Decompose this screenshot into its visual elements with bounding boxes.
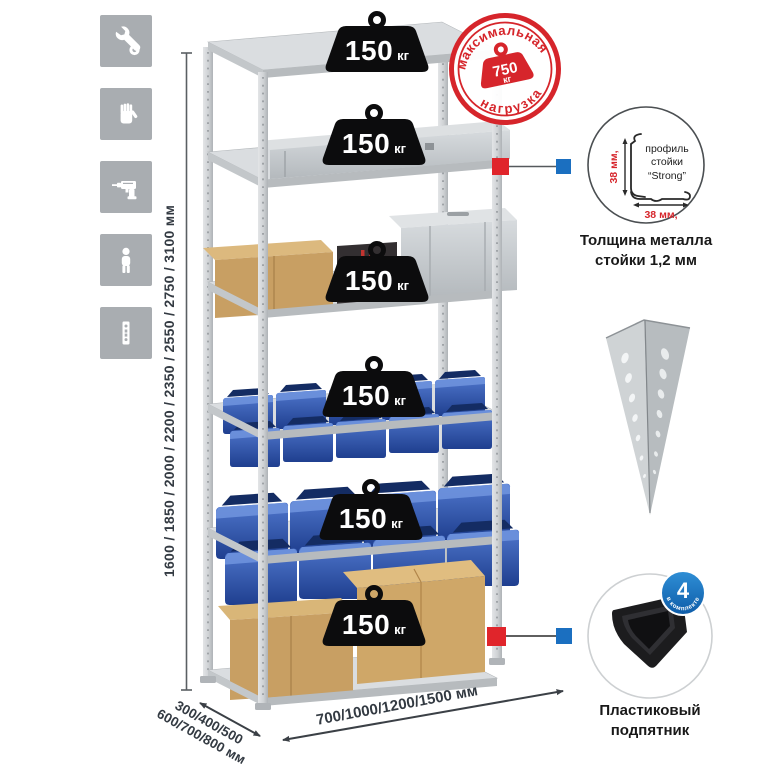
foot-caption-line2: подпятник bbox=[572, 721, 728, 741]
weight-value: 150 bbox=[339, 503, 387, 535]
height-dimension-label: 1600 / 1850 / 2000 / 2200 / 2350 / 2550 … bbox=[161, 111, 181, 671]
profile-label-line2: стойки bbox=[651, 156, 683, 168]
shelf-weight-4: 150кг bbox=[313, 355, 435, 421]
bottom-callout-blue-square bbox=[556, 628, 572, 644]
weight-value: 150 bbox=[345, 35, 393, 67]
shelving-infographic: 150кг 150кг 150кг 150кг 150кг bbox=[0, 0, 765, 765]
bottom-callout-red-square bbox=[487, 627, 506, 646]
profile-label-line1: профиль bbox=[645, 143, 689, 155]
foot-caption-line1: Пластиковый bbox=[572, 701, 728, 721]
profile-cross-section-callout: 38 мм, 38 мм, профиль стойки “Strong” bbox=[585, 104, 707, 226]
included-count-badge: 4 в комплекте bbox=[659, 569, 707, 617]
top-callout-blue-square bbox=[556, 159, 571, 174]
profile-caption: Толщина металла стойки 1,2 мм bbox=[565, 231, 727, 270]
top-callout-red-square bbox=[492, 158, 509, 175]
profile-vertical-dim: 38 мм, bbox=[608, 150, 620, 183]
weight-value: 150 bbox=[342, 380, 390, 412]
weight-unit: кг bbox=[397, 48, 409, 63]
max-load-stamp: максимальная нагрузка 750 кг bbox=[436, 0, 574, 138]
badge-value: 4 bbox=[677, 578, 690, 603]
shelf-weight-3: 150кг bbox=[316, 240, 438, 306]
profile-horizontal-dim: 38 мм, bbox=[644, 209, 677, 221]
weight-unit: кг bbox=[394, 141, 406, 156]
weight-unit: кг bbox=[397, 278, 409, 293]
weight-unit: кг bbox=[394, 622, 406, 637]
shelf-weight-1: 150кг bbox=[316, 10, 438, 76]
weight-value: 150 bbox=[342, 128, 390, 160]
weight-value: 150 bbox=[345, 265, 393, 297]
profile-label-line3: “Strong” bbox=[648, 170, 686, 182]
shelf-weight-5: 150кг bbox=[310, 478, 432, 544]
weight-unit: кг bbox=[391, 516, 403, 531]
weight-value: 150 bbox=[342, 609, 390, 641]
profile-caption-line2: стойки 1,2 мм bbox=[565, 251, 727, 271]
weight-unit: кг bbox=[394, 393, 406, 408]
shelf-weight-6: 150кг bbox=[313, 584, 435, 650]
shelf-weight-2: 150кг bbox=[313, 103, 435, 169]
angle-profile-illustration bbox=[598, 310, 698, 525]
profile-caption-line1: Толщина металла bbox=[565, 231, 727, 251]
foot-caption: Пластиковый подпятник bbox=[572, 701, 728, 740]
